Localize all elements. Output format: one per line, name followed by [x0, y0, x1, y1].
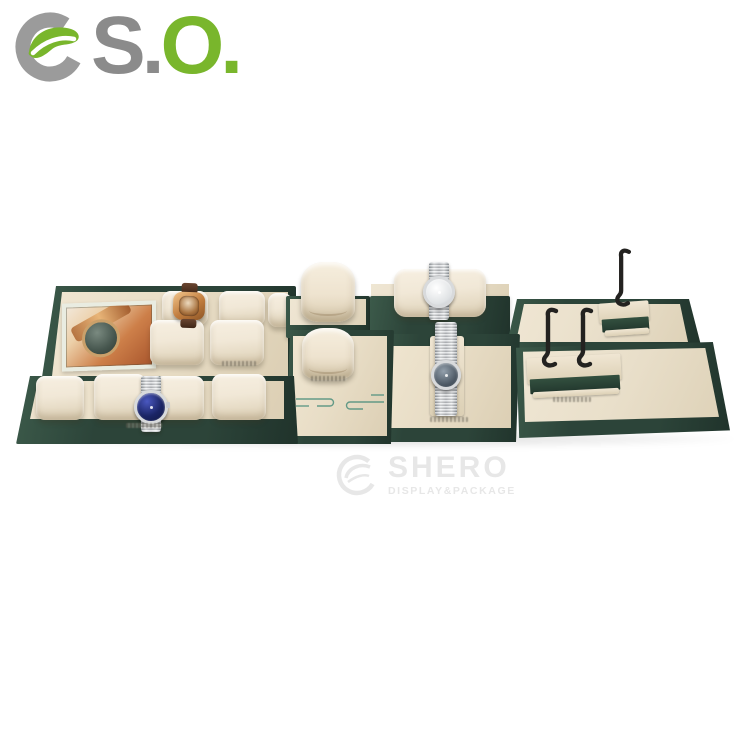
watch-dial [423, 276, 455, 308]
watch-pillow [268, 293, 292, 327]
tray-deck [30, 381, 284, 419]
tray-deck [516, 304, 688, 342]
stand-base-top [598, 300, 649, 323]
pillow-stand [301, 262, 355, 322]
meander-embroidery [295, 391, 385, 417]
framed-photo-strap [70, 300, 132, 342]
watch-dial [179, 296, 200, 317]
framed-photo-watch [82, 319, 120, 358]
stand-base-mid [602, 316, 650, 332]
tray-body [40, 286, 296, 390]
left-lower-tray [0, 0, 750, 750]
watch-pillow [150, 320, 204, 365]
right-back-tray [0, 0, 750, 750]
brand-swirl-ring-icon [13, 8, 89, 84]
brand-stamp [553, 397, 591, 402]
brand-stamp [311, 376, 347, 381]
brand-text-green: O. [160, 0, 239, 91]
console-body [286, 330, 394, 444]
brand-stamp [430, 417, 468, 422]
brand-stamp [126, 423, 162, 428]
watch-strap [181, 283, 197, 295]
bracelet-bar [430, 336, 464, 416]
watch-rose-gold [169, 282, 209, 329]
watch-pillow [36, 376, 84, 420]
watch-pillow [162, 291, 208, 325]
picture-frame [62, 300, 156, 371]
tray-deck [523, 348, 719, 422]
watermark-subtitle: DISPLAY&PACKAGE [388, 485, 516, 497]
watch-hook-icon [615, 247, 637, 309]
brand-logo: S.O. [13, 8, 239, 84]
watch-pillow [210, 320, 264, 365]
watermark-ring-icon [334, 452, 380, 498]
watch-pillow [394, 269, 486, 317]
pillow-stand [302, 328, 354, 380]
watch-hook-icon [542, 305, 564, 371]
watermark-text: SHERO DISPLAY&PACKAGE [388, 453, 516, 497]
watch-pillow [94, 374, 146, 420]
watermark-title: SHERO [388, 453, 516, 483]
block-body [370, 296, 510, 338]
stand-base-foot [605, 327, 649, 336]
display-set [0, 0, 750, 750]
riser-body [286, 296, 370, 338]
riser-deck [290, 299, 366, 325]
watch-bracelet [435, 322, 457, 416]
stand-base-mid [530, 375, 621, 395]
watch-steel-silver [422, 262, 456, 320]
watch-dial [431, 360, 461, 390]
brand-stamp [222, 361, 256, 366]
console-panel [293, 336, 387, 436]
watch-bracelet [429, 262, 449, 320]
tray-body [516, 342, 730, 438]
brand-text-gray: S. [91, 0, 160, 91]
middle-back-riser [0, 0, 750, 750]
stand-base-top [526, 354, 621, 385]
single-hook-stand [0, 0, 750, 750]
watch-case [173, 291, 206, 320]
bracelet-ramp [0, 0, 750, 750]
left-upper-tray [0, 0, 750, 750]
block-top [371, 284, 509, 300]
watch-steel-grey [431, 322, 461, 416]
tray-body [16, 376, 298, 444]
ramp-deck [377, 346, 511, 428]
watch-strap [180, 319, 196, 329]
center-riser-block [0, 0, 750, 750]
watch-pillow [219, 291, 265, 326]
watch-hook-icon [577, 305, 599, 371]
watch-steel-blue [132, 376, 170, 432]
product-photo: S.O. [0, 0, 750, 750]
stand-base-foot [533, 388, 619, 398]
double-hook-stand [0, 0, 750, 750]
watch-dial [134, 390, 168, 424]
set-shadow [14, 430, 734, 448]
watermark: SHERO DISPLAY&PACKAGE [334, 452, 516, 498]
ramp-body [370, 334, 520, 442]
tray-body [505, 299, 703, 353]
watch-crown [166, 402, 170, 408]
watch-pillow [154, 376, 204, 420]
brand-logo-text: S.O. [91, 8, 239, 84]
tray-deck [52, 292, 288, 376]
watch-pillow [212, 374, 266, 420]
watch-bracelet [141, 376, 161, 432]
middle-console [0, 0, 750, 750]
right-front-tray [0, 0, 750, 750]
